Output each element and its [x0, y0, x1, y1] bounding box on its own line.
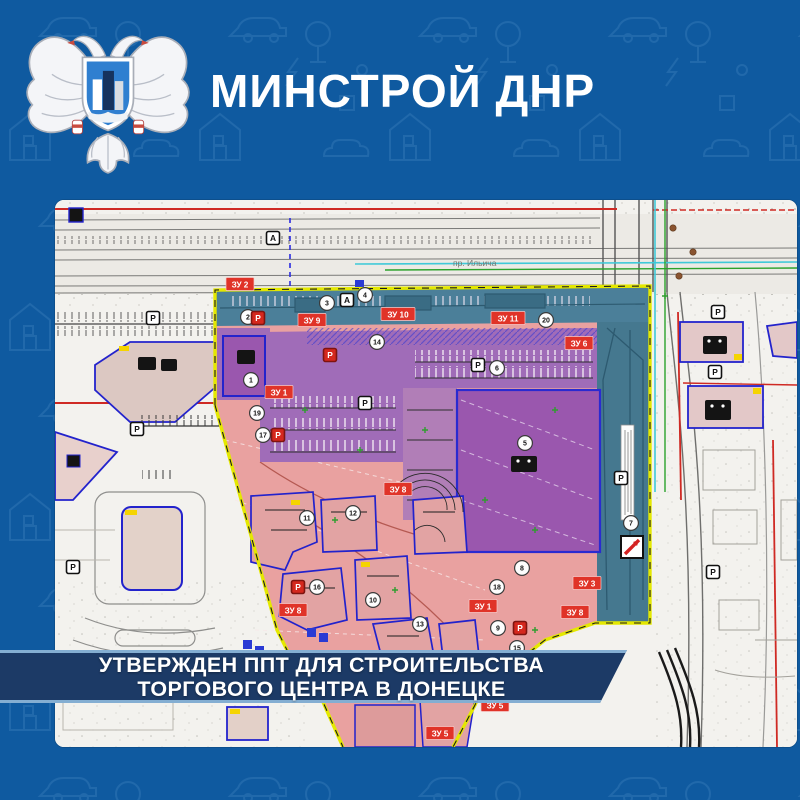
- plot-label: ЗУ 5: [426, 727, 454, 740]
- point-marker: 7: [624, 516, 639, 531]
- parking-icon: Р: [472, 359, 485, 372]
- svg-text:Р: Р: [255, 313, 261, 323]
- svg-text:16: 16: [313, 585, 321, 592]
- svg-text:Р: Р: [362, 398, 368, 408]
- parking-icon: Р: [707, 566, 720, 579]
- svg-text:ЗУ 6: ЗУ 6: [571, 339, 588, 348]
- parking-icon-red: Р: [324, 349, 337, 362]
- point-marker: 19: [250, 406, 265, 421]
- street-label: пр. Ильича: [453, 258, 497, 268]
- point-marker: 3: [320, 296, 335, 311]
- svg-text:Р: Р: [618, 473, 624, 483]
- point-marker: 11: [300, 511, 315, 526]
- emblem-shield: [83, 57, 134, 130]
- svg-text:ЗУ 8: ЗУ 8: [285, 606, 302, 615]
- headline-banner: УТВЕРЖДЕН ППТ ДЛЯ СТРОИТЕЛЬСТВА ТОРГОВОГ…: [0, 650, 627, 703]
- point-marker: 13: [413, 617, 428, 632]
- point-marker: 6: [490, 361, 505, 376]
- plot-label: ЗУ 8: [279, 604, 307, 617]
- svg-text:Р: Р: [134, 424, 140, 434]
- svg-text:12: 12: [349, 511, 357, 518]
- minstroy-emblem-logo: [22, 8, 194, 178]
- point-marker: 12: [346, 506, 361, 521]
- point-marker: 18: [490, 580, 505, 595]
- point-marker: 14: [370, 335, 385, 350]
- svg-text:1: 1: [249, 378, 253, 385]
- svg-text:Р: Р: [150, 313, 156, 323]
- svg-text:ЗУ 2: ЗУ 2: [232, 280, 249, 289]
- point-marker: 4: [358, 288, 373, 303]
- svg-text:ЗУ 11: ЗУ 11: [498, 314, 519, 323]
- svg-text:ЗУ 8: ЗУ 8: [390, 485, 407, 494]
- headline-line-1: УТВЕРЖДЕН ППТ ДЛЯ СТРОИТЕЛЬСТВА: [99, 653, 544, 677]
- plot-label: ЗУ 10: [381, 308, 415, 321]
- point-marker: 20: [539, 313, 554, 328]
- svg-text:Р: Р: [712, 367, 718, 377]
- plot-label: ЗУ 8: [561, 606, 589, 619]
- point-marker: 16: [310, 580, 325, 595]
- svg-text:Р: Р: [70, 562, 76, 572]
- bus-stop-icon: А: [267, 232, 280, 245]
- svg-text:6: 6: [495, 366, 499, 373]
- svg-text:3: 3: [325, 301, 329, 308]
- point-marker: 10: [366, 593, 381, 608]
- parking-icon-red: Р: [272, 429, 285, 442]
- svg-text:ЗУ 1: ЗУ 1: [271, 388, 288, 397]
- svg-text:11: 11: [303, 516, 311, 523]
- svg-text:14: 14: [373, 340, 381, 347]
- parking-icon-red: Р: [514, 622, 527, 635]
- parking-icon: Р: [67, 561, 80, 574]
- svg-text:Р: Р: [517, 623, 523, 633]
- svg-text:ЗУ 10: ЗУ 10: [387, 310, 409, 319]
- parking-icon: Р: [131, 423, 144, 436]
- svg-text:Р: Р: [710, 567, 716, 577]
- svg-text:Р: Р: [327, 350, 333, 360]
- parking-icon: Р: [147, 312, 160, 325]
- svg-text:5: 5: [523, 441, 527, 448]
- headline-line-2: ТОРГОВОГО ЦЕНТРА В ДОНЕЦКЕ: [137, 677, 505, 701]
- bus-stop-icon: А: [341, 294, 354, 307]
- parking-icon-red: Р: [292, 581, 305, 594]
- plot-label: ЗУ 11: [491, 312, 525, 325]
- plot-label: ЗУ 1: [469, 600, 497, 613]
- svg-text:Р: Р: [275, 430, 281, 440]
- svg-text:2: 2: [246, 315, 250, 322]
- svg-text:ЗУ 9: ЗУ 9: [304, 316, 321, 325]
- svg-text:Р: Р: [295, 582, 301, 592]
- plot-label: ЗУ 3: [573, 577, 601, 590]
- poster: { "header": { "title": "МИНСТРОЙ ДНР", "…: [0, 0, 800, 800]
- svg-text:9: 9: [496, 626, 500, 633]
- point-marker: 1: [244, 373, 259, 388]
- svg-text:ЗУ 8: ЗУ 8: [567, 608, 584, 617]
- point-marker: 5: [518, 436, 533, 451]
- parking-icon: Р: [709, 366, 722, 379]
- svg-text:7: 7: [629, 521, 633, 528]
- point-marker: 8: [515, 561, 530, 576]
- point-marker: 17: [256, 428, 271, 443]
- svg-text:17: 17: [259, 433, 267, 440]
- svg-text:13: 13: [416, 622, 424, 629]
- parking-icon-red: Р: [252, 312, 265, 325]
- no-entry-sign: [621, 536, 643, 558]
- point-marker: 9: [491, 621, 506, 636]
- svg-text:4: 4: [363, 293, 367, 300]
- svg-text:10: 10: [369, 598, 377, 605]
- parking-icon: Р: [359, 397, 372, 410]
- svg-text:ЗУ 5: ЗУ 5: [432, 729, 449, 738]
- svg-text:А: А: [270, 233, 276, 243]
- svg-text:18: 18: [493, 585, 501, 592]
- plot-label: ЗУ 8: [384, 483, 412, 496]
- svg-text:ЗУ 3: ЗУ 3: [579, 579, 596, 588]
- svg-text:ЗУ 1: ЗУ 1: [475, 602, 492, 611]
- svg-text:А: А: [344, 295, 350, 305]
- svg-text:19: 19: [253, 411, 261, 418]
- parking-icon: Р: [615, 472, 628, 485]
- svg-text:Р: Р: [475, 360, 481, 370]
- svg-text:20: 20: [542, 318, 550, 325]
- plot-label: ЗУ 2: [226, 278, 254, 291]
- plot-label: ЗУ 6: [565, 337, 593, 350]
- plot-label: ЗУ 9: [298, 314, 326, 327]
- parking-icon: Р: [712, 306, 725, 319]
- eagle-tail: [87, 134, 128, 173]
- svg-text:8: 8: [520, 566, 524, 573]
- plot-label: ЗУ 1: [265, 386, 293, 399]
- page-title: МИНСТРОЙ ДНР: [210, 64, 770, 118]
- svg-text:Р: Р: [715, 307, 721, 317]
